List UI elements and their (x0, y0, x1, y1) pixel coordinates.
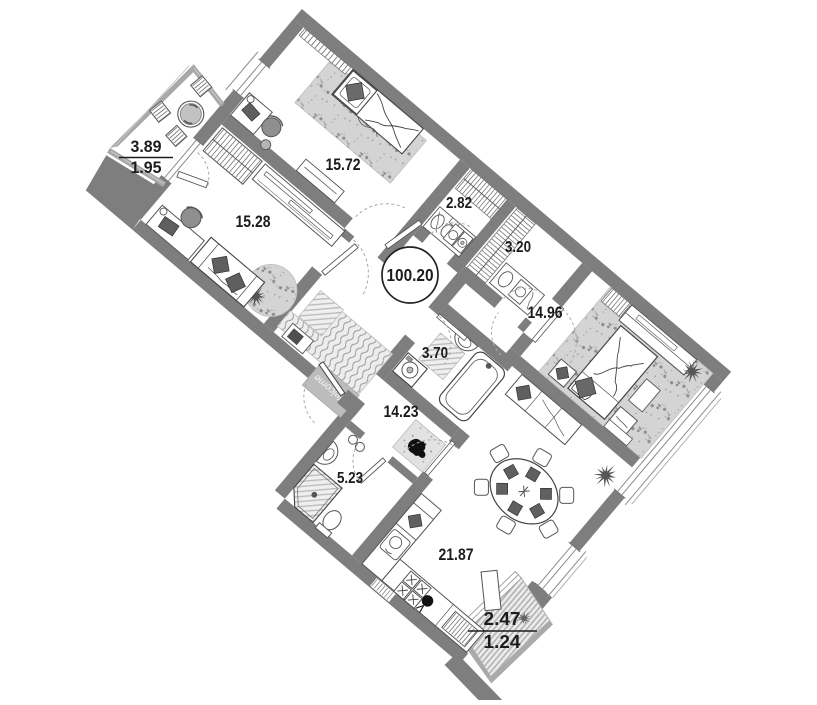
svg-text:5.23: 5.23 (337, 470, 363, 487)
svg-text:3.70: 3.70 (422, 345, 448, 362)
svg-text:2.82: 2.82 (446, 195, 472, 212)
svg-text:3.89: 3.89 (131, 138, 162, 156)
svg-text:15.72: 15.72 (326, 155, 361, 174)
svg-text:14.96: 14.96 (528, 303, 563, 322)
svg-text:1.95: 1.95 (131, 159, 162, 177)
svg-text:100.20: 100.20 (387, 265, 434, 285)
svg-text:1.24: 1.24 (484, 632, 521, 652)
svg-text:14.23: 14.23 (384, 402, 419, 421)
svg-text:15.28: 15.28 (236, 212, 271, 231)
svg-text:3.20: 3.20 (505, 239, 531, 256)
svg-text:21.87: 21.87 (439, 545, 474, 564)
svg-text:2.47: 2.47 (484, 609, 521, 629)
